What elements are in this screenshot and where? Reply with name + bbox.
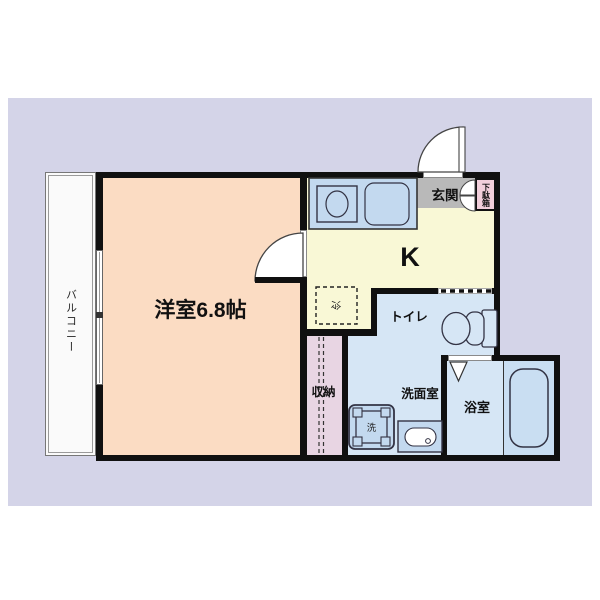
bathroom-door-threshold — [448, 355, 492, 361]
label-refrigerator: 冷 — [318, 285, 355, 326]
wall-right-bathroom — [554, 355, 560, 461]
wall-left-lower — [96, 385, 103, 455]
floor-plan-page: バルコニー 洋室6.8帖 K 玄関 下駄箱 冷 トイレ 洗面室 収納 浴室 洗 — [0, 0, 600, 600]
label-washroom: 洗面室 — [388, 381, 452, 403]
label-shoe-cabinet: 下駄箱 — [475, 179, 496, 211]
entrance-threshold — [423, 170, 463, 178]
label-western-room: 洋室6.8帖 — [103, 294, 298, 324]
balcony-window-joint — [96, 312, 103, 318]
label-toilet: トイレ — [378, 303, 440, 327]
label-balcony: バルコニー — [45, 242, 96, 400]
wall-storage-top — [300, 329, 377, 336]
wall-left-upper — [96, 172, 103, 250]
label-storage: 収納 — [299, 379, 348, 403]
wall-bottom — [96, 455, 560, 461]
label-washer: 洗 — [349, 417, 394, 437]
kitchen-door-threshold — [300, 230, 307, 277]
label-kitchen: K — [380, 238, 440, 276]
label-bathroom: 浴室 — [449, 394, 505, 418]
wall-room-divider-lower — [300, 277, 307, 455]
bathtub-panel — [503, 361, 554, 455]
wall-room-divider-upper — [300, 172, 307, 230]
wall-bathroom-left — [441, 361, 447, 455]
label-entrance: 玄関 — [415, 181, 475, 207]
wall-toilet-left — [371, 288, 377, 336]
toilet-sliding-door — [438, 288, 492, 294]
